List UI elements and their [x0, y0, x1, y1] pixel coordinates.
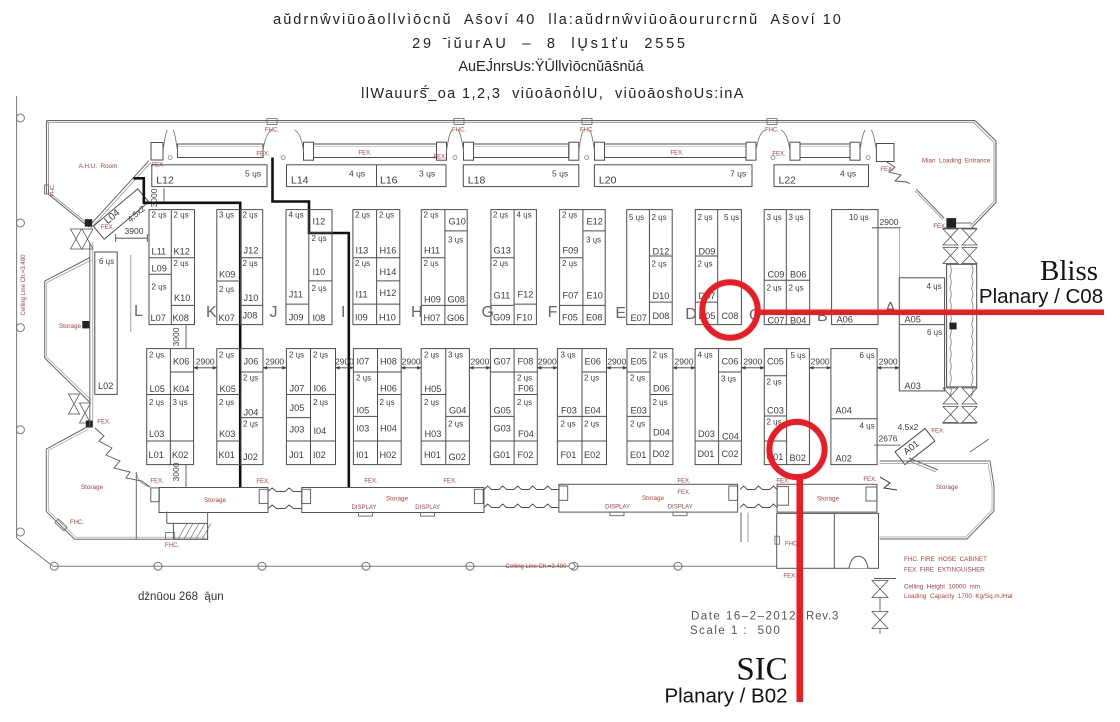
- svg-text:K02: K02: [172, 450, 188, 460]
- svg-text:D: D: [685, 306, 697, 323]
- svg-text:5 ųs: 5 ųs: [724, 213, 739, 222]
- svg-text:E10: E10: [587, 291, 603, 301]
- svg-text:A05: A05: [905, 315, 921, 325]
- svg-text:2 ųs: 2 ųs: [630, 420, 645, 429]
- svg-text:H06: H06: [380, 384, 397, 394]
- svg-text:F03: F03: [561, 406, 577, 416]
- svg-text:F02: F02: [518, 450, 534, 460]
- svg-text:FEX.: FEX.: [677, 479, 691, 485]
- svg-text:2 ųs: 2 ųs: [493, 259, 508, 268]
- svg-text:FHC.: FHC.: [50, 183, 56, 196]
- svg-text:3 ųs: 3 ųs: [721, 375, 736, 384]
- svg-text:2 ųs: 2 ųs: [448, 420, 463, 429]
- svg-text:H05: H05: [425, 384, 442, 394]
- svg-text:3 ųs: 3 ųs: [448, 236, 463, 245]
- svg-text:I04: I04: [314, 426, 327, 436]
- svg-text:2 ųs: 2 ųs: [313, 351, 328, 360]
- svg-text:E05: E05: [631, 357, 647, 367]
- svg-text:6 ųs: 6 ųs: [860, 351, 875, 360]
- svg-text:29 ̄iŭurAU – 8 lU̙s1ťu 25: 29 ̄iŭurAU – 8 lU̙s1ťu 2555: [412, 36, 688, 52]
- svg-text:FEX.: FEX.: [443, 479, 457, 485]
- svg-text:3 ųs: 3 ųs: [767, 213, 782, 222]
- svg-text:2 ųs: 2 ųs: [219, 285, 234, 294]
- svg-text:E04: E04: [585, 406, 601, 416]
- svg-text:K04: K04: [173, 384, 189, 394]
- svg-text:I: I: [341, 304, 345, 321]
- svg-text:FEX.: FEX.: [776, 479, 790, 485]
- svg-text:2900: 2900: [879, 357, 898, 367]
- svg-text:D01: D01: [698, 449, 715, 459]
- svg-text:E: E: [615, 305, 626, 322]
- svg-text:I09: I09: [355, 313, 368, 323]
- svg-text:H07: H07: [424, 313, 441, 323]
- svg-text:H12: H12: [380, 288, 397, 298]
- svg-text:2 ųs: 2 ųs: [584, 374, 599, 383]
- svg-text:L12: L12: [156, 175, 174, 187]
- svg-text:FEX.: FEX.: [670, 151, 684, 157]
- svg-text:B02: B02: [790, 453, 806, 463]
- svg-text:G02: G02: [449, 452, 466, 462]
- svg-text:I01: I01: [356, 450, 369, 460]
- svg-text:3900: 3900: [125, 226, 144, 236]
- svg-text:J03: J03: [290, 425, 305, 435]
- svg-text:2 ųs: 2 ųs: [424, 211, 439, 220]
- svg-text:L09: L09: [152, 264, 167, 274]
- svg-text:2 ųs: 2 ųs: [174, 259, 189, 268]
- svg-text:2900: 2900: [470, 357, 489, 367]
- svg-text:2 ųs: 2 ųs: [313, 398, 328, 407]
- svg-text:L20: L20: [599, 175, 617, 187]
- svg-text:FHC.: FHC.: [765, 128, 779, 134]
- svg-text:5 ųs: 5 ųs: [629, 213, 644, 222]
- svg-text:2900: 2900: [335, 357, 354, 367]
- svg-text:D06: D06: [653, 384, 670, 394]
- svg-text:3 ųs: 3 ųs: [789, 213, 804, 222]
- svg-text:A06: A06: [837, 315, 853, 325]
- svg-text:B04: B04: [790, 316, 806, 326]
- svg-text:4 ųs: 4 ųs: [698, 351, 713, 360]
- svg-text:2900: 2900: [402, 357, 421, 367]
- svg-text:FEX.: FEX.: [150, 479, 164, 485]
- svg-text:DISPLAY: DISPLAY: [415, 505, 440, 511]
- svg-text:L02: L02: [98, 381, 113, 391]
- svg-text:F12: F12: [518, 290, 534, 300]
- svg-text:FEX.: FEX.: [256, 479, 270, 485]
- svg-text:C09: C09: [768, 270, 785, 280]
- svg-text:FHC.: FHC.: [580, 128, 594, 134]
- svg-text:2 ųs: 2 ųs: [424, 351, 439, 360]
- svg-text:E07: E07: [631, 313, 647, 323]
- svg-text:2 ųs: 2 ųs: [380, 398, 395, 407]
- svg-text:FEX.: FEX.: [364, 479, 378, 485]
- svg-text:J12: J12: [244, 246, 259, 256]
- svg-text:2 ųs: 2 ųs: [562, 259, 577, 268]
- svg-text:C03: C03: [767, 406, 784, 416]
- svg-text:4 ųs: 4 ųs: [840, 169, 856, 179]
- svg-text:3 ųs: 3 ųs: [419, 169, 435, 179]
- svg-text:Scale 1 : 500: Scale 1 : 500: [690, 625, 781, 637]
- svg-text:F06: F06: [518, 384, 534, 394]
- svg-text:I03: I03: [357, 424, 370, 434]
- svg-text:D09: D09: [699, 247, 716, 257]
- svg-text:Storage: Storage: [386, 496, 409, 503]
- svg-text:FEX.: FEX.: [772, 152, 786, 158]
- svg-text:FHC.: FHC.: [265, 128, 279, 134]
- svg-text:E06: E06: [585, 357, 601, 367]
- svg-text:D04: D04: [653, 428, 670, 438]
- svg-text:E01: E01: [630, 450, 646, 460]
- svg-text:D08: D08: [653, 311, 670, 321]
- svg-text:Loading Capacity 1700 Kg/Sq: Loading Capacity 1700 Kg/Sq.m./Hal: [904, 593, 1013, 600]
- svg-text:4 ųs: 4 ųs: [517, 211, 532, 220]
- svg-text:E02: E02: [584, 450, 600, 460]
- svg-text:DISPLAY: DISPLAY: [605, 505, 630, 511]
- svg-text:FEX. FIRE EXTINGUISHER: FEX. FIRE EXTINGUISHER: [904, 567, 985, 574]
- svg-text:2 ųs: 2 ųs: [424, 259, 439, 268]
- svg-text:3 ųs: 3 ųs: [448, 351, 463, 360]
- svg-text:FEX.: FEX.: [933, 224, 947, 230]
- svg-text:2900: 2900: [607, 357, 626, 367]
- svg-text:J08: J08: [243, 311, 258, 321]
- svg-text:F04: F04: [518, 429, 534, 439]
- svg-text:2 ųs: 2 ųs: [652, 260, 667, 269]
- svg-text:4 ųs: 4 ųs: [927, 282, 942, 291]
- svg-text:2 ųs: 2 ųs: [289, 351, 304, 360]
- svg-text:G03: G03: [494, 424, 511, 434]
- svg-text:FHC. FIRE HOSE CABINET: FHC. FIRE HOSE CABINET: [904, 556, 987, 563]
- svg-text:4 ųs: 4 ųs: [349, 169, 365, 179]
- svg-text:Celling Line Ch.=3.480: Celling Line Ch.=3.480: [506, 564, 568, 570]
- svg-text:2 ųs: 2 ųs: [243, 259, 258, 268]
- svg-text:FHC.: FHC.: [452, 128, 466, 134]
- svg-text:2 ųs: 2 ųs: [561, 420, 576, 429]
- svg-text:H11: H11: [424, 246, 440, 256]
- svg-text:FEX.: FEX.: [677, 490, 691, 496]
- svg-text:Planary / B02: Planary / B02: [664, 685, 787, 708]
- svg-text:K06: K06: [173, 357, 189, 367]
- svg-text:F: F: [548, 304, 558, 321]
- svg-text:2900: 2900: [811, 357, 830, 367]
- svg-text:3 ųs: 3 ųs: [586, 236, 601, 245]
- svg-text:A03: A03: [905, 381, 921, 391]
- svg-text:Rev.3: Rev.3: [806, 611, 839, 623]
- svg-text:2 ųs: 2 ųs: [312, 284, 327, 293]
- svg-text:2 ųs: 2 ųs: [219, 351, 234, 360]
- svg-text:L03: L03: [149, 429, 164, 439]
- svg-text:I08: I08: [313, 313, 326, 323]
- svg-text:C04: C04: [722, 432, 739, 442]
- svg-text:H16: H16: [380, 246, 397, 256]
- svg-text:G08: G08: [448, 295, 465, 305]
- svg-text:Storage: Storage: [936, 484, 959, 491]
- svg-text:K09: K09: [219, 270, 235, 280]
- svg-text:F08: F08: [518, 357, 534, 367]
- svg-text:aŭdrnŵviūoāollvìōcnŭ As̄o: aŭdrnŵviūoāollvìōcnŭ As̄oví 40 lla:…: [273, 12, 843, 28]
- svg-text:FHC.: FHC.: [70, 520, 84, 526]
- svg-text:F09: F09: [563, 246, 579, 256]
- svg-text:5 ųs: 5 ųs: [245, 169, 261, 179]
- svg-text:I02: I02: [313, 450, 326, 460]
- svg-text:10 ųs: 10 ųs: [849, 213, 869, 222]
- svg-text:2 ųs: 2 ųs: [356, 374, 371, 383]
- svg-text:D02: D02: [653, 449, 670, 459]
- svg-text:H09: H09: [424, 295, 441, 305]
- svg-text:G11: G11: [494, 291, 511, 301]
- svg-text:K03: K03: [219, 429, 235, 439]
- svg-text:G04: G04: [449, 406, 466, 416]
- svg-text:3000: 3000: [149, 188, 159, 207]
- svg-text:J11: J11: [289, 290, 303, 300]
- svg-text:2 ųs: 2 ųs: [174, 211, 189, 220]
- svg-text:2 ųs: 2 ųs: [517, 374, 532, 383]
- svg-text:2900: 2900: [196, 357, 215, 367]
- svg-text:2676: 2676: [879, 434, 898, 444]
- svg-text:2 ųs: 2 ųs: [652, 213, 667, 222]
- svg-text:I07: I07: [357, 357, 370, 367]
- svg-text:Storage: Storage: [204, 497, 227, 504]
- svg-text:F01: F01: [561, 450, 577, 460]
- svg-text:llWauurs̄́̄_oa 1,2,3 viūoāo: llWauurs̄́̄_oa 1,2,3 viūoāon̄o̔lU, viu…: [361, 85, 745, 102]
- svg-text:2 ųs: 2 ųs: [698, 213, 713, 222]
- svg-text:I13: I13: [356, 246, 369, 256]
- svg-text:I11: I11: [356, 290, 368, 300]
- svg-text:E12: E12: [587, 217, 603, 227]
- svg-text:F10: F10: [517, 313, 533, 323]
- svg-text:3 ųs: 3 ųs: [561, 351, 576, 360]
- svg-text:J02: J02: [243, 452, 258, 462]
- svg-text:3000: 3000: [171, 462, 181, 481]
- svg-text:J09: J09: [289, 313, 304, 323]
- svg-text:2 ųs: 2 ųs: [149, 351, 164, 360]
- svg-text:H01: H01: [424, 450, 441, 460]
- svg-text:G07: G07: [494, 357, 511, 367]
- svg-text:Planary / C08: Planary / C08: [979, 285, 1103, 308]
- svg-text:F07: F07: [563, 291, 579, 301]
- svg-text:I12: I12: [313, 217, 326, 227]
- svg-text:2900: 2900: [675, 357, 694, 367]
- svg-text:K10: K10: [174, 293, 190, 303]
- svg-text:G: G: [482, 304, 494, 321]
- svg-text:K01: K01: [219, 450, 235, 460]
- svg-text:2 ųs: 2 ųs: [653, 351, 668, 360]
- svg-text:J10: J10: [244, 293, 259, 303]
- svg-text:D03: D03: [698, 429, 715, 439]
- svg-text:7 ųs: 7 ųs: [730, 169, 746, 179]
- svg-text:K08: K08: [173, 313, 189, 323]
- svg-text:2 ųs: 2 ųs: [152, 211, 167, 220]
- svg-text:4.5x2: 4.5x2: [898, 422, 919, 432]
- svg-text:2 ųs: 2 ųs: [789, 284, 804, 293]
- svg-text:2 ųs: 2 ųs: [243, 420, 258, 429]
- svg-text:DISPLAY: DISPLAY: [668, 505, 693, 511]
- svg-text:2 ųs: 2 ųs: [355, 259, 370, 268]
- svg-text:2 ųs: 2 ųs: [630, 374, 645, 383]
- svg-text:G13: G13: [494, 246, 511, 256]
- svg-text:C05: C05: [767, 357, 784, 367]
- svg-text:J04: J04: [244, 408, 259, 418]
- svg-text:L22: L22: [779, 175, 797, 187]
- svg-text:C06: C06: [722, 357, 739, 367]
- svg-text:L07: L07: [151, 313, 166, 323]
- svg-text:H: H: [411, 304, 423, 321]
- svg-text:L11: L11: [152, 247, 167, 257]
- svg-text:AuEJ́nrsUs:ŸŪllvìōcnŭās̄nŭ: AuEJ́nrsUs:ŸŪllvìōcnŭās̄nŭá: [458, 58, 644, 75]
- svg-text:Celling Line Ch.=3.480: Celling Line Ch.=3.480: [21, 254, 27, 316]
- svg-text:K05: K05: [220, 384, 236, 394]
- svg-text:6 ųs: 6 ųs: [99, 257, 114, 266]
- svg-text:2 ųs: 2 ųs: [653, 398, 668, 407]
- svg-text:2900: 2900: [880, 217, 899, 227]
- svg-text:FEX.: FEX.: [931, 429, 945, 435]
- svg-text:FEX.: FEX.: [256, 152, 270, 158]
- svg-text:3000: 3000: [171, 327, 181, 346]
- svg-text:E03: E03: [631, 406, 647, 416]
- svg-text:FEX.: FEX.: [433, 155, 447, 161]
- svg-text:A.H.U. Room: A.H.U. Room: [79, 163, 118, 170]
- svg-text:2900: 2900: [538, 357, 557, 367]
- svg-text:SIC: SIC: [736, 652, 787, 688]
- svg-text:B06: B06: [790, 270, 806, 280]
- svg-text:J06: J06: [244, 357, 259, 367]
- svg-text:2 ųs: 2 ųs: [149, 398, 164, 407]
- svg-text:I05: I05: [357, 406, 370, 416]
- svg-text:H03: H03: [425, 429, 442, 439]
- svg-text:2 ųs: 2 ųs: [243, 211, 258, 220]
- svg-text:K07: K07: [219, 313, 235, 323]
- svg-text:2 ųs: 2 ųs: [424, 398, 439, 407]
- svg-text:4 ųs: 4 ųs: [860, 422, 875, 431]
- svg-text:F05: F05: [562, 313, 578, 323]
- svg-text:2 ųs: 2 ųs: [584, 420, 599, 429]
- svg-text:2 ųs: 2 ųs: [767, 378, 782, 387]
- svg-text:2 ųs: 2 ųs: [312, 234, 327, 243]
- svg-text:2 ųs: 2 ųs: [493, 211, 508, 220]
- svg-text:Mian Loading Entrance: Mian Loading Entrance: [922, 158, 991, 165]
- svg-text:2 ųs: 2 ųs: [562, 211, 577, 220]
- svg-text:A04: A04: [836, 406, 852, 416]
- svg-text:Storage: Storage: [642, 495, 665, 502]
- svg-text:FHC.: FHC.: [165, 543, 179, 549]
- svg-text:C08: C08: [722, 311, 739, 321]
- svg-text:L05: L05: [150, 384, 165, 394]
- svg-text:2 ųs: 2 ųs: [698, 260, 713, 269]
- svg-text:FEX.: FEX.: [863, 477, 877, 483]
- svg-text:2900: 2900: [265, 357, 284, 367]
- svg-text:K12: K12: [174, 247, 190, 257]
- svg-text:J: J: [270, 304, 278, 321]
- svg-text:G01: G01: [493, 450, 510, 460]
- svg-text:H10: H10: [379, 313, 396, 323]
- svg-text:2 ųs: 2 ųs: [379, 211, 394, 220]
- svg-text:E08: E08: [586, 313, 602, 323]
- svg-text:FEX.: FEX.: [101, 225, 115, 231]
- svg-text:Date 16–2–2012: Date 16–2–2012: [691, 611, 797, 623]
- svg-text:2 ųs: 2 ųs: [243, 374, 258, 383]
- svg-text:6 ųs: 6 ųs: [927, 328, 942, 337]
- svg-text:I06: I06: [314, 384, 327, 394]
- svg-text:2 ųs: 2 ųs: [767, 284, 782, 293]
- svg-text:Bliss: Bliss: [1040, 255, 1098, 287]
- svg-text:L16: L16: [380, 175, 398, 187]
- svg-text:H04: H04: [380, 424, 397, 434]
- svg-text:C07: C07: [768, 316, 785, 326]
- svg-text:C02: C02: [722, 449, 739, 459]
- svg-text:2 ųs: 2 ųs: [219, 398, 234, 407]
- svg-text:G10: G10: [449, 217, 466, 227]
- svg-text:H14: H14: [380, 267, 397, 277]
- svg-text:L14: L14: [291, 175, 309, 187]
- svg-text:5 ųs: 5 ųs: [552, 169, 568, 179]
- svg-text:H02: H02: [380, 450, 397, 460]
- svg-text:Storage: Storage: [817, 496, 840, 503]
- svg-text:3 ųs: 3 ųs: [173, 398, 188, 407]
- svg-text:Storage: Storage: [59, 323, 82, 330]
- svg-text:3 ųs: 3 ųs: [219, 211, 234, 220]
- svg-text:D10: D10: [653, 291, 670, 301]
- svg-text:K: K: [206, 304, 217, 321]
- svg-text:J01: J01: [289, 450, 304, 460]
- svg-text:L01: L01: [149, 450, 164, 460]
- svg-text:FEX.: FEX.: [97, 420, 111, 426]
- svg-text:G06: G06: [447, 313, 464, 323]
- svg-text:G09: G09: [493, 313, 510, 323]
- svg-text:5 ųs: 5 ųs: [791, 351, 806, 360]
- svg-text:L18: L18: [468, 175, 486, 187]
- svg-text:J05: J05: [290, 403, 305, 413]
- svg-text:Storage: Storage: [81, 484, 104, 491]
- svg-text:ǳ̄nūou 268 ą̄un: ǳ̄nūou 268 ą̄un: [138, 591, 224, 603]
- svg-text:2 ųs: 2 ųs: [517, 398, 532, 407]
- svg-text:FEX.: FEX.: [358, 151, 372, 157]
- svg-text:Celling Height 10000 mm.: Celling Height 10000 mm.: [904, 584, 982, 591]
- svg-text:FEX.: FEX.: [151, 163, 165, 169]
- svg-text:FEX.: FEX.: [783, 574, 797, 580]
- svg-text:2 ųs: 2 ųs: [355, 211, 370, 220]
- svg-text:I10: I10: [313, 267, 326, 277]
- svg-text:DISPLAY: DISPLAY: [352, 505, 377, 511]
- svg-text:D12: D12: [653, 247, 670, 257]
- svg-text:4 ųs: 4 ųs: [289, 211, 304, 220]
- svg-text:G05: G05: [494, 406, 511, 416]
- svg-text:H08: H08: [380, 357, 397, 367]
- svg-text:2900: 2900: [743, 357, 762, 367]
- svg-text:A02: A02: [836, 454, 852, 464]
- svg-text:L: L: [134, 303, 143, 320]
- svg-text:2 ųs: 2 ųs: [152, 283, 167, 292]
- svg-text:J07: J07: [290, 384, 305, 394]
